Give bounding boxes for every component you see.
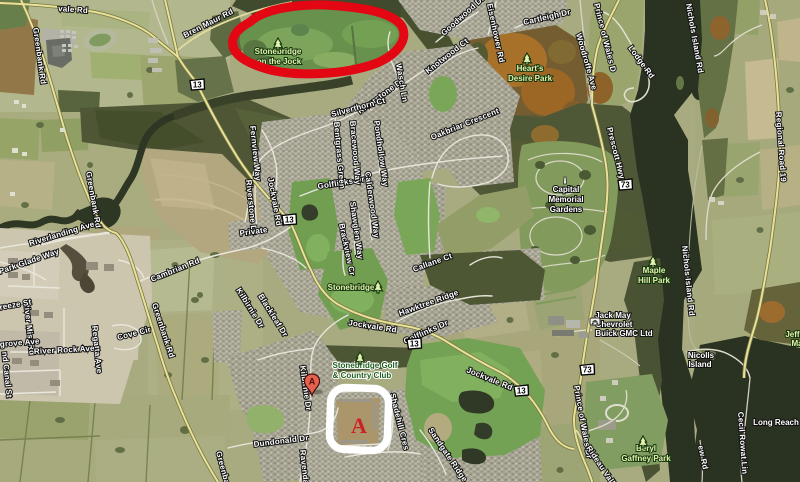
svg-text:Capital: Capital: [553, 185, 580, 194]
svg-text:A: A: [309, 377, 316, 387]
svg-text:Chevrolet: Chevrolet: [596, 320, 633, 329]
svg-text:13: 13: [285, 216, 294, 225]
svg-text:Ma: Ma: [791, 339, 800, 348]
svg-text:13: 13: [517, 387, 526, 396]
svg-text:Jeffr: Jeffr: [785, 330, 800, 339]
svg-text:73: 73: [621, 181, 630, 190]
svg-text:Desire Park: Desire Park: [508, 74, 553, 83]
svg-text:Long Reach: Long Reach: [753, 418, 799, 427]
svg-text:73: 73: [583, 366, 592, 375]
svg-text:Jack May: Jack May: [595, 311, 631, 320]
svg-text:Hill Park: Hill Park: [638, 276, 671, 285]
svg-text:13: 13: [410, 340, 419, 349]
svg-text:A: A: [351, 413, 367, 438]
svg-text:Heart's: Heart's: [517, 64, 544, 73]
svg-text:Gaffney Park: Gaffney Park: [621, 454, 671, 463]
svg-text:Stonebridge: Stonebridge: [328, 283, 375, 292]
svg-text:Gardens: Gardens: [550, 205, 583, 214]
svg-text:Buick GMC Ltd: Buick GMC Ltd: [595, 329, 652, 338]
svg-text:13: 13: [193, 81, 202, 90]
svg-text:Nicolls: Nicolls: [688, 351, 715, 360]
svg-text:& Country Club: & Country Club: [333, 371, 392, 380]
svg-text:Island: Island: [688, 360, 711, 369]
svg-text:Memorial: Memorial: [548, 195, 583, 204]
